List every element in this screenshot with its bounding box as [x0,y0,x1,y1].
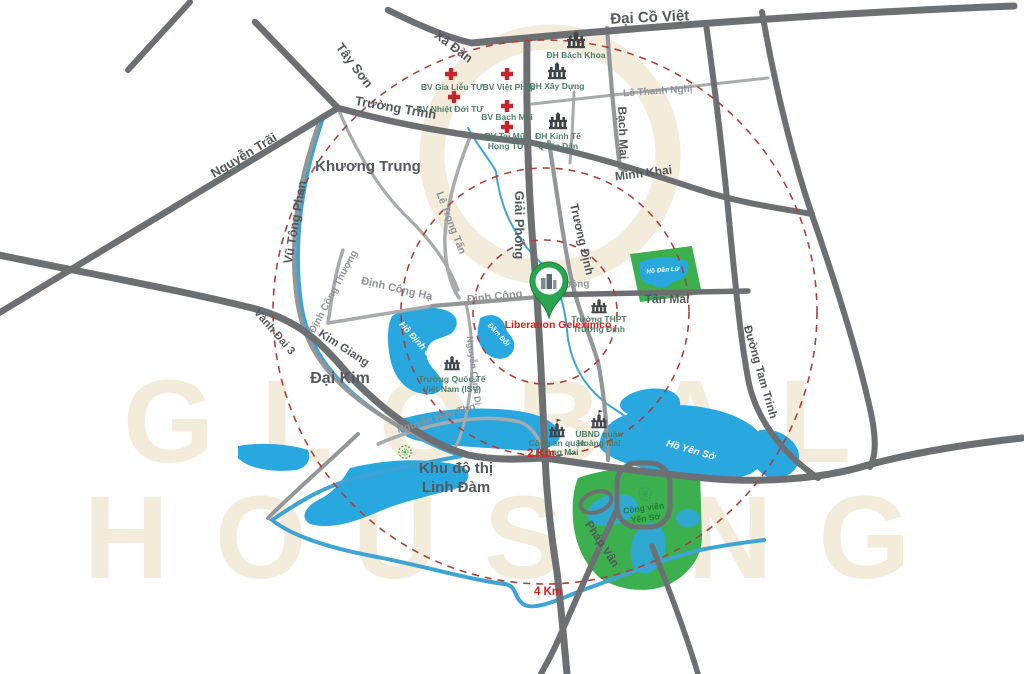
street-label-dinh-cong: Định Công [466,288,523,306]
area-label-linh-dam-1: Khu đô thị [419,460,493,477]
radius-label-2km: 2 Km [527,448,555,460]
university-label-xay-dung: ĐH Xây Dựng [530,81,585,91]
hospital-label-gia-lieu: BV Gia Liễu TƯ [421,82,484,92]
street-label-giai-phong: Giải Phóng [512,191,527,260]
hospital-label-nhiet-doi: BV Nhiệt Đới TƯ [417,104,485,114]
university-label-kinh-te-1: ĐH Kinh Tế [535,131,581,141]
road-xa-dan [388,10,472,43]
watermark-line2: HOUSING [84,472,957,604]
school-label-isv-2: Việt Nam (ISV) [423,384,481,394]
area-label-dai-kim: Đại Kim [310,370,370,387]
university-label-bach-khoa: ĐH Bách Khoa [546,50,605,60]
street-label-bach-mai: Bạch Mai [615,106,631,159]
street-label-tay-son: Tây Sơn [333,40,376,90]
university-icon [549,112,567,129]
street-label-vu-tong-phan: Vũ Tông Phan [281,180,309,265]
street-label-dai-co-viet: Đại Cồ Việt [610,7,690,27]
university-label-kinh-te-2: Quốc Dân [538,141,578,151]
hospital-label-viet-phap: BV Việt Pháp [483,82,536,92]
area-label-linh-dam-2: Linh Đàm [422,479,490,496]
radius-label-4km: 4 Km [534,586,562,598]
street-label-nguyen-trai: Nguyễn Trãi [208,130,280,181]
road-kim-dong-tan-mai [538,291,748,295]
hospital-label-tai-mui-1: BV Tai Mũi [485,131,528,141]
school-icon [591,299,606,314]
project-name-label: Liberation Geleximco [505,319,612,331]
road-nguyen-trai [0,108,338,316]
hospital-cross-icon [501,68,513,80]
area-label-khuong-trung: Khương Trung [315,158,421,175]
street-label-tan-mai: Tân Mai [645,292,690,306]
street-label-xa-dan: Xã Đàn [432,27,476,66]
pond-yen-so-3 [676,509,700,527]
university-icon [548,62,566,79]
school-label-isv-1: Trường Quốc Tế [419,374,486,384]
gov-label-ubnd-2: Hoàng Mai [578,438,621,448]
hospital-cross-icon [501,100,513,112]
location-map: GLOBAL HOUSING [0,0,1024,674]
road-corner-topleft [128,2,190,70]
hospital-label-tai-mui-2: Họng TƯ [488,141,525,151]
road-tay-son [255,22,338,108]
hospital-label-bach-mai: BV Bạch Mai [481,112,533,122]
street-label-dinh-cong-ha: Định Công Hạ [360,275,434,303]
road-dai-co-viet [472,6,1014,43]
